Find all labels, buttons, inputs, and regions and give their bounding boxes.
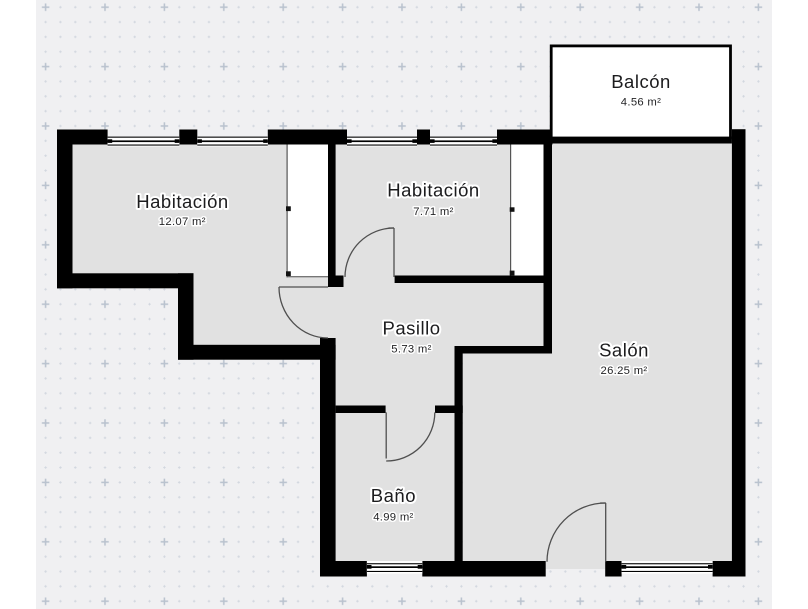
svg-text:4.56 m²: 4.56 m² <box>621 97 661 109</box>
svg-text:Habitación: Habitación <box>136 191 228 212</box>
svg-text:Balcón: Balcón <box>611 71 671 92</box>
svg-text:4.99 m²: 4.99 m² <box>373 511 413 523</box>
svg-text:Pasillo: Pasillo <box>383 318 441 339</box>
svg-text:7.71 m²: 7.71 m² <box>413 206 453 218</box>
svg-text:5.73 m²: 5.73 m² <box>391 344 431 356</box>
svg-text:26.25 m²: 26.25 m² <box>601 365 648 377</box>
svg-text:12.07 m²: 12.07 m² <box>159 216 206 228</box>
svg-text:Habitación: Habitación <box>387 180 479 201</box>
svg-text:Salón: Salón <box>599 340 649 361</box>
svg-text:Baño: Baño <box>371 485 416 506</box>
